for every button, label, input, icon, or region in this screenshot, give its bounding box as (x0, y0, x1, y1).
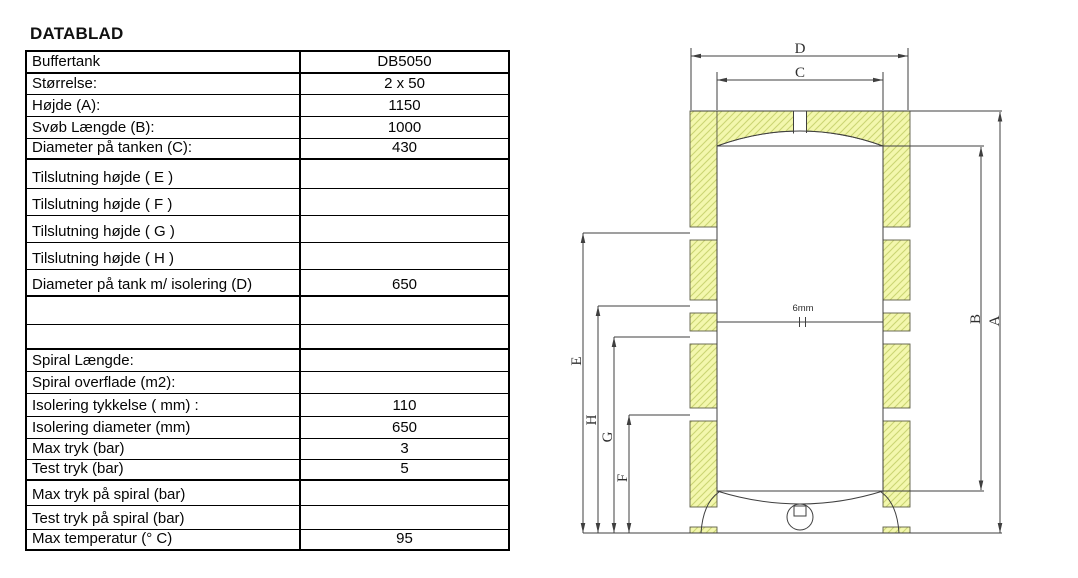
top-gap (794, 110, 807, 134)
insulation-segment (883, 111, 910, 227)
insulation-segment (690, 344, 717, 408)
insulation-segment (690, 313, 717, 331)
dim-arrow (898, 54, 908, 59)
dim-arrow (581, 523, 586, 533)
dim-arrow (717, 78, 727, 83)
row-value: 1000 (300, 116, 509, 138)
table-row: Test tryk (bar)5 (26, 459, 509, 480)
dim-label-C: C (795, 65, 805, 81)
dim-label-B: B (968, 314, 984, 324)
table-row: Tilslutning højde ( F ) (26, 188, 509, 215)
insulation-segment (883, 421, 910, 507)
table-row: Tilslutning højde ( H ) (26, 242, 509, 269)
dim-arrow (596, 306, 601, 316)
row-value: 3 (300, 438, 509, 459)
dim-arrow (998, 112, 1003, 122)
table-row: Test tryk på spiral (bar) (26, 505, 509, 529)
row-value: 650 (300, 269, 509, 296)
row-value: 110 (300, 393, 509, 416)
table-row: Isolering tykkelse ( mm) :110 (26, 393, 509, 416)
row-value (300, 296, 509, 324)
row-value: 2 x 50 (300, 73, 509, 94)
tank-drawing: D C A B E H (560, 0, 1078, 578)
insulation-right-column (883, 111, 910, 533)
dim-arrow (596, 523, 601, 533)
dimension-A: A (987, 112, 1003, 534)
dimension-C: C (717, 65, 883, 110)
top-connection-stub (794, 110, 807, 134)
row-value: DB5050 (300, 51, 509, 73)
row-label: Test tryk på spiral (bar) (26, 505, 300, 529)
table-row (26, 296, 509, 324)
table-row: Højde (A):1150 (26, 94, 509, 116)
row-value (300, 324, 509, 349)
dim-label-A: A (987, 315, 1003, 326)
insulation-segment (690, 240, 717, 300)
dim-arrow (627, 415, 632, 425)
table-row: Spiral overflade (m2): (26, 371, 509, 393)
dim-arrow (873, 78, 883, 83)
row-value (300, 349, 509, 371)
dim-label-F: F (615, 474, 631, 482)
row-value (300, 159, 509, 188)
table-row: Max tryk på spiral (bar) (26, 480, 509, 505)
row-value (300, 188, 509, 215)
table-row: Diameter på tank m/ isolering (D)650 (26, 269, 509, 296)
dimension-G: G (600, 337, 690, 533)
row-value (300, 480, 509, 505)
dim-arrow (979, 147, 984, 157)
row-label: Isolering tykkelse ( mm) : (26, 393, 300, 416)
dim-label-G: G (600, 431, 616, 442)
table-row: Max temperatur (° C)95 (26, 529, 509, 550)
row-label: Spiral overflade (m2): (26, 371, 300, 393)
table-row: Svøb Længde (B):1000 (26, 116, 509, 138)
row-label: Tilslutning højde ( G ) (26, 215, 300, 242)
insulation-segment (883, 313, 910, 331)
row-label: Højde (A): (26, 94, 300, 116)
row-label: Diameter på tanken (C): (26, 138, 300, 159)
row-label: Isolering diameter (mm) (26, 416, 300, 438)
dim-arrow (612, 337, 617, 347)
row-value: 1150 (300, 94, 509, 116)
table-row (26, 324, 509, 349)
tank-body (583, 111, 1002, 533)
dim-arrow (979, 481, 984, 491)
drain-notch (794, 506, 806, 516)
row-label: Buffertank (26, 51, 300, 73)
dimension-F: F (615, 415, 690, 533)
table-row: Spiral Længde: (26, 349, 509, 371)
table-row: BuffertankDB5050 (26, 51, 509, 73)
row-value: 650 (300, 416, 509, 438)
row-value (300, 215, 509, 242)
dim-label-D: D (795, 41, 806, 57)
dim-arrow (612, 523, 617, 533)
insulation-segment (690, 421, 717, 507)
page-title: DATABLAD (30, 24, 124, 44)
spec-table: BuffertankDB5050 Størrelse:2 x 50 Højde … (25, 50, 510, 551)
row-label: Tilslutning højde ( H ) (26, 242, 300, 269)
table-row: Tilslutning højde ( E ) (26, 159, 509, 188)
insulation-left-column (690, 111, 717, 533)
row-label: Max tryk på spiral (bar) (26, 480, 300, 505)
insulation-segment (690, 527, 717, 533)
dimension-H: H (584, 306, 690, 533)
row-value (300, 242, 509, 269)
dim-label-H: H (584, 414, 600, 425)
row-label: Størrelse: (26, 73, 300, 94)
row-value: 5 (300, 459, 509, 480)
row-label: Diameter på tank m/ isolering (D) (26, 269, 300, 296)
table-row: Isolering diameter (mm)650 (26, 416, 509, 438)
row-label: Svøb Længde (B): (26, 116, 300, 138)
row-value (300, 371, 509, 393)
insulation-segment (883, 527, 910, 533)
dimension-B: B (968, 147, 984, 491)
dim-label-E: E (569, 356, 585, 365)
row-value (300, 505, 509, 529)
table-row: Tilslutning højde ( G ) (26, 215, 509, 242)
row-label: Tilslutning højde ( F ) (26, 188, 300, 215)
table-row: Størrelse:2 x 50 (26, 73, 509, 94)
row-value: 95 (300, 529, 509, 550)
insulation-segment (883, 344, 910, 408)
dim-arrow (581, 233, 586, 243)
table-row: Max tryk (bar)3 (26, 438, 509, 459)
row-label: Test tryk (bar) (26, 459, 300, 480)
table-row: Diameter på tanken (C):430 (26, 138, 509, 159)
row-label: Max tryk (bar) (26, 438, 300, 459)
row-label: Tilslutning højde ( E ) (26, 159, 300, 188)
dim-arrow (691, 54, 701, 59)
row-value: 430 (300, 138, 509, 159)
drain-flange (787, 504, 813, 530)
insulation-segment (883, 240, 910, 300)
tank-dish-bottom (717, 491, 883, 504)
insulation-segment (690, 111, 717, 227)
row-label: Max temperatur (° C) (26, 529, 300, 550)
dim-arrow (998, 523, 1003, 533)
row-label (26, 296, 300, 324)
row-label (26, 324, 300, 349)
wall-thickness-label: 6mm (792, 303, 813, 314)
row-label: Spiral Længde: (26, 349, 300, 371)
dim-arrow (627, 523, 632, 533)
